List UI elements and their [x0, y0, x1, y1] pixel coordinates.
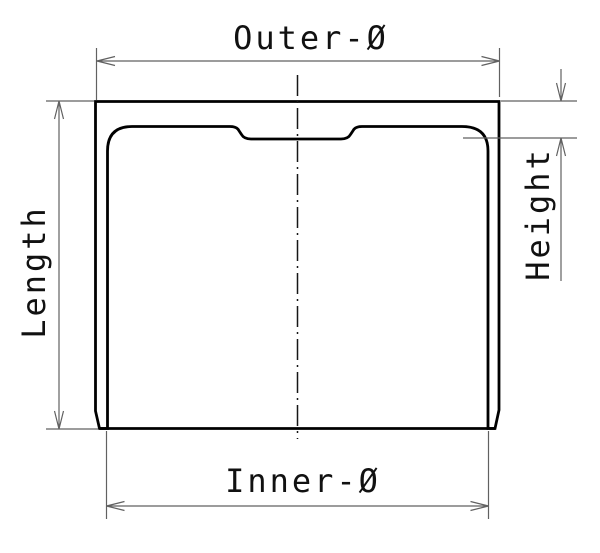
- inner-diameter-label: Inner-Ø: [225, 462, 381, 500]
- length-label: Length: [15, 205, 53, 339]
- height-label: Height: [519, 147, 557, 281]
- outer-diameter-label: Outer-Ø: [233, 19, 389, 57]
- technical-drawing-canvas: Outer-Ø Inner-Ø Length Height: [0, 0, 600, 553]
